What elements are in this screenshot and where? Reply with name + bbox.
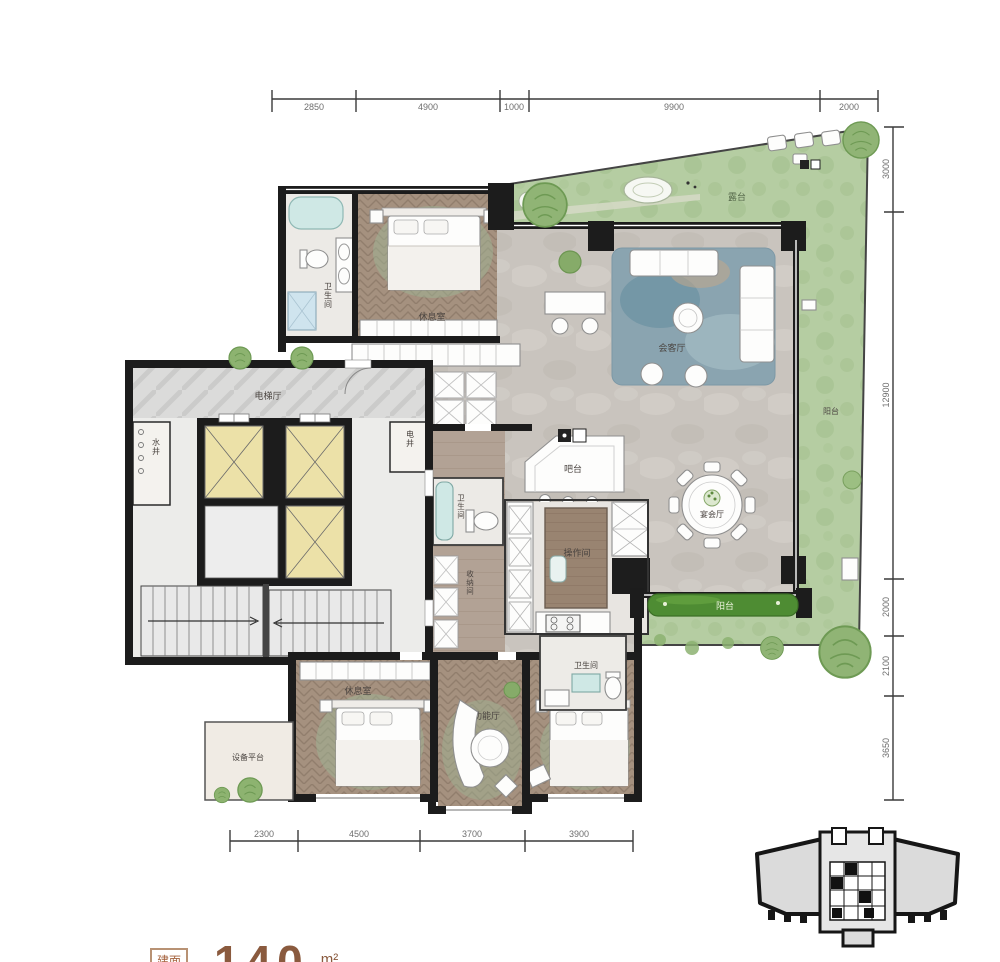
balcony-box bbox=[842, 558, 858, 580]
shrub bbox=[291, 347, 313, 369]
area-value: 140 bbox=[214, 941, 309, 962]
dim-right-3: 2000 bbox=[881, 597, 891, 617]
water-shaft-room bbox=[133, 422, 170, 505]
desk-chair bbox=[582, 318, 598, 334]
core-block: 电梯厅 水井 电井 bbox=[125, 360, 433, 665]
dimension-bottom: 2300 4500 3700 3900 bbox=[230, 829, 633, 852]
dim-right-2: 12900 bbox=[881, 382, 891, 407]
kitchen-counter-left bbox=[507, 502, 533, 632]
terrace-label: 露台 bbox=[728, 191, 746, 202]
bath-toilet bbox=[605, 677, 621, 699]
dim-bottom-3: 3700 bbox=[462, 829, 482, 839]
wc-toilet bbox=[474, 512, 498, 530]
coffee-table bbox=[673, 303, 703, 333]
elevator-car bbox=[286, 426, 344, 498]
shrub bbox=[238, 778, 262, 802]
island-sink bbox=[550, 556, 566, 582]
dimension-top: 2850 4900 1000 9900 2000 bbox=[272, 90, 878, 112]
area-unit: m² bbox=[321, 951, 339, 962]
balcony-right-label: 阳台 bbox=[823, 406, 839, 416]
water-shaft-label: 水井 bbox=[152, 437, 161, 456]
wc-tub bbox=[436, 482, 453, 540]
cabinet-row bbox=[300, 662, 430, 680]
bottom-planter: 阳台 bbox=[648, 594, 798, 616]
headboard bbox=[382, 208, 486, 216]
dim-bottom-2: 4500 bbox=[349, 829, 369, 839]
study-desk bbox=[545, 292, 605, 314]
plant bbox=[559, 251, 581, 273]
dim-bottom-1: 2300 bbox=[254, 829, 274, 839]
kitchen-label: 操作间 bbox=[563, 547, 590, 558]
bar-label: 吧台 bbox=[564, 463, 582, 474]
balcony-bottom-label: 阳台 bbox=[716, 600, 734, 611]
living-label: 会客厅 bbox=[658, 342, 685, 353]
storage-label: 收纳间 bbox=[465, 569, 474, 596]
tree bbox=[843, 122, 879, 158]
key-plan bbox=[757, 828, 958, 946]
column bbox=[588, 221, 614, 251]
tree bbox=[761, 637, 784, 660]
bedroom-top-label: 休息室 bbox=[418, 311, 445, 322]
toilet bbox=[306, 250, 328, 268]
shrub bbox=[214, 787, 229, 802]
bath-vanity bbox=[545, 690, 569, 706]
elevator-hall-label: 电梯厅 bbox=[254, 390, 281, 401]
electric-shaft-label: 电井 bbox=[406, 429, 415, 448]
sofa bbox=[630, 250, 718, 276]
floor-plan-svg: 露台 阳台 卫生间 休息室 bbox=[0, 0, 1000, 962]
round-table bbox=[471, 729, 509, 767]
sofa bbox=[740, 266, 774, 362]
dim-top-4: 9900 bbox=[664, 102, 684, 112]
banquet-label: 宴会厅 bbox=[700, 509, 724, 519]
stove bbox=[546, 615, 580, 632]
wc-corridor-label: 卫生间 bbox=[456, 494, 465, 520]
key-plan-left-wing bbox=[757, 839, 826, 914]
dimension-right: 3000 12900 2000 2100 3650 bbox=[881, 127, 904, 800]
terrace-pond bbox=[624, 177, 672, 203]
suite-top-left: 卫生间 休息室 bbox=[286, 194, 497, 337]
key-plan-stem bbox=[843, 930, 873, 946]
balcony-bench bbox=[802, 300, 816, 310]
bathtub bbox=[289, 197, 343, 229]
shrub bbox=[229, 347, 251, 369]
dim-top-3: 1000 bbox=[504, 102, 524, 112]
dim-right-1: 3000 bbox=[881, 159, 891, 179]
bath-top-label: 卫生间 bbox=[324, 282, 333, 309]
balcony-bush bbox=[843, 471, 861, 489]
dim-top-2: 4900 bbox=[418, 102, 438, 112]
nightstand bbox=[320, 700, 332, 712]
kitchen: 操作间 bbox=[505, 500, 650, 634]
area-prefix-badge: 建面 bbox=[150, 948, 188, 962]
nightstand bbox=[370, 210, 383, 223]
armchair bbox=[685, 365, 707, 387]
bedroom-bl-label: 休息室 bbox=[344, 685, 371, 696]
dim-bottom-4: 3900 bbox=[569, 829, 589, 839]
plant bbox=[504, 682, 520, 698]
elevator-car bbox=[205, 426, 263, 498]
bath-sink bbox=[572, 674, 600, 692]
wardrobe bbox=[360, 320, 497, 337]
dining-area: 宴会厅 bbox=[669, 462, 755, 548]
tree bbox=[819, 626, 870, 677]
elevator-car bbox=[286, 506, 344, 578]
bar-stove-icon bbox=[573, 429, 586, 442]
desk-chair bbox=[552, 318, 568, 334]
key-plan-right-wing bbox=[889, 839, 958, 914]
bath-bottom-label: 卫生间 bbox=[574, 660, 598, 670]
column bbox=[488, 183, 514, 230]
floor-plan-page: 露台 阳台 卫生间 休息室 bbox=[0, 0, 1000, 962]
column bbox=[630, 588, 644, 618]
dim-top-1: 2850 bbox=[304, 102, 324, 112]
dim-right-4: 2100 bbox=[881, 656, 891, 676]
armchair bbox=[641, 363, 663, 385]
dim-top-5: 2000 bbox=[839, 102, 859, 112]
stairs bbox=[141, 584, 391, 658]
area-label: 建面 140 m² bbox=[150, 941, 338, 962]
tree bbox=[523, 183, 567, 227]
dim-right-5: 3650 bbox=[881, 738, 891, 758]
equipment-label: 设备平台 bbox=[232, 752, 264, 762]
